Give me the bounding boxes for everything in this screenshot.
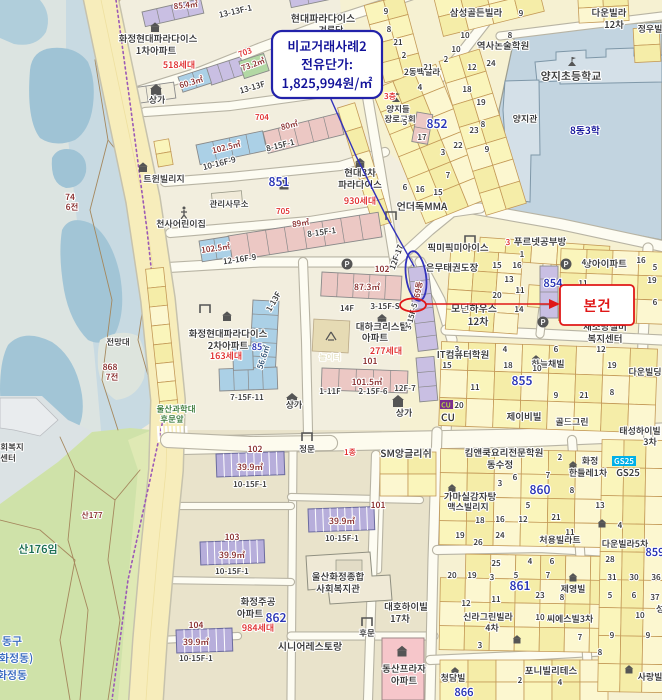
svg-text:6: 6 (632, 590, 637, 601)
svg-text:전유단가:: 전유단가: (301, 54, 353, 73)
svg-text:20: 20 (492, 290, 502, 301)
svg-text:5: 5 (653, 262, 658, 273)
svg-text:GS25: GS25 (614, 456, 634, 467)
svg-text:23: 23 (535, 590, 545, 601)
svg-text:5: 5 (514, 570, 519, 581)
svg-text:12: 12 (518, 514, 528, 525)
svg-text:7: 7 (446, 170, 451, 181)
svg-text:12: 12 (461, 598, 471, 609)
svg-text:(화정동): (화정동) (0, 650, 33, 666)
svg-text:7-15F-11: 7-15F-11 (230, 392, 264, 403)
svg-text:21: 21 (579, 390, 589, 401)
svg-text:2: 2 (558, 452, 563, 463)
svg-text:P: P (344, 259, 349, 270)
svg-text:역사논술학원: 역사논술학원 (477, 38, 529, 52)
svg-text:31: 31 (607, 572, 617, 583)
svg-text:13: 13 (595, 500, 605, 511)
svg-text:21: 21 (551, 512, 561, 523)
svg-text:2: 2 (518, 675, 523, 686)
svg-text:3: 3 (478, 640, 483, 651)
svg-text:아파트: 아파트 (362, 330, 388, 344)
svg-text:P: P (563, 259, 568, 270)
svg-text:12: 12 (596, 344, 606, 355)
svg-text:9: 9 (610, 630, 615, 641)
svg-text:8: 8 (610, 387, 615, 398)
svg-text:GS25: GS25 (616, 465, 640, 479)
svg-text:4: 4 (558, 677, 563, 688)
svg-text:8: 8 (598, 647, 603, 658)
svg-text:아파트: 아파트 (391, 673, 417, 687)
svg-text:센터: 센터 (0, 452, 16, 464)
svg-text:14F: 14F (340, 303, 354, 314)
svg-text:8: 8 (570, 485, 575, 496)
svg-text:39.9㎡: 39.9㎡ (329, 515, 355, 527)
svg-text:87.3㎡: 87.3㎡ (354, 281, 380, 293)
svg-text:정우빌: 정우빌 (638, 22, 662, 35)
svg-text:39.9㎡: 39.9㎡ (219, 549, 245, 561)
svg-text:5: 5 (403, 117, 408, 128)
svg-text:12: 12 (467, 62, 477, 73)
svg-text:13: 13 (504, 274, 514, 285)
svg-text:6전: 6전 (66, 201, 79, 213)
svg-text:30: 30 (629, 572, 639, 583)
svg-text:3층: 3층 (384, 91, 396, 102)
svg-text:15: 15 (433, 187, 443, 198)
svg-text:본건: 본건 (583, 295, 611, 316)
svg-text:IT컴퓨터학원: IT컴퓨터학원 (437, 347, 490, 361)
svg-text:39.9㎡: 39.9㎡ (183, 636, 209, 648)
svg-text:16: 16 (636, 255, 646, 266)
svg-text:전망대: 전망대 (106, 336, 130, 348)
svg-text:15: 15 (492, 260, 502, 271)
svg-text:파라다이스: 파라다이스 (338, 177, 382, 191)
svg-text:아파트: 아파트 (237, 606, 263, 620)
svg-text:3: 3 (441, 147, 446, 158)
svg-text:6: 6 (403, 182, 408, 193)
svg-text:복지센터: 복지센터 (588, 331, 623, 345)
svg-text:26: 26 (473, 537, 483, 548)
svg-text:984세대: 984세대 (242, 621, 274, 634)
svg-text:704: 704 (255, 112, 269, 123)
svg-text:4: 4 (618, 520, 623, 531)
svg-text:9: 9 (485, 144, 490, 155)
svg-text:101: 101 (371, 499, 386, 511)
svg-text:픽미픽미아이스: 픽미픽미아이스 (427, 240, 488, 254)
svg-text:상가: 상가 (396, 406, 413, 419)
svg-text:18: 18 (503, 360, 513, 371)
svg-text:24: 24 (486, 58, 496, 69)
svg-text:10-15F-1: 10-15F-1 (179, 653, 213, 664)
svg-text:11: 11 (565, 527, 575, 538)
svg-text:8: 8 (481, 119, 486, 130)
svg-text:8: 8 (560, 592, 565, 603)
svg-text:14: 14 (514, 304, 524, 315)
svg-text:관리사무소: 관리사무소 (209, 198, 248, 210)
svg-text:씨에스빌3차: 씨에스빌3차 (547, 612, 594, 625)
svg-text:4: 4 (582, 257, 587, 268)
svg-text:39.9㎡: 39.9㎡ (237, 461, 263, 473)
svg-text:2-15F-6: 2-15F-6 (359, 386, 388, 397)
svg-text:102: 102 (248, 443, 263, 455)
svg-text:18: 18 (462, 84, 472, 95)
svg-text:맥스빌리지: 맥스빌리지 (447, 500, 488, 513)
svg-text:6: 6 (653, 297, 658, 308)
svg-text:CU: CU (441, 409, 455, 424)
svg-text:3: 3 (455, 344, 460, 355)
svg-text:4: 4 (418, 82, 423, 93)
svg-text:18: 18 (475, 515, 485, 526)
svg-text:19: 19 (467, 570, 477, 581)
svg-text:4: 4 (528, 556, 533, 567)
svg-text:CU: CU (441, 401, 451, 411)
svg-text:518세대: 518세대 (163, 58, 195, 71)
svg-text:24: 24 (495, 530, 505, 541)
svg-text:19: 19 (607, 360, 617, 371)
svg-text:11: 11 (515, 285, 525, 296)
svg-text:3: 3 (498, 478, 503, 489)
svg-text:언더독MMA: 언더독MMA (397, 198, 448, 213)
svg-text:7: 7 (578, 632, 583, 643)
svg-text:장로교회: 장로교회 (384, 113, 415, 125)
svg-text:6: 6 (513, 472, 518, 483)
svg-text:산177: 산177 (81, 510, 103, 521)
svg-text:제이비빌: 제이비빌 (507, 409, 542, 423)
svg-text:9: 9 (646, 630, 651, 641)
svg-text:103: 103 (225, 531, 240, 543)
svg-text:동구: 동구 (2, 633, 22, 649)
svg-text:7전: 7전 (106, 371, 119, 383)
svg-text:15: 15 (442, 360, 452, 371)
svg-text:7: 7 (546, 570, 551, 581)
svg-text:1: 1 (520, 249, 525, 260)
svg-text:11: 11 (470, 382, 480, 393)
svg-text:5: 5 (526, 500, 531, 511)
svg-text:705: 705 (276, 206, 290, 217)
svg-text:화정동: 화정동 (0, 667, 27, 683)
svg-text:1,825,994원/㎡: 1,825,994원/㎡ (282, 73, 373, 92)
svg-text:3: 3 (490, 572, 495, 583)
svg-text:사회복지관: 사회복지관 (316, 581, 360, 595)
svg-text:12차: 12차 (468, 313, 489, 328)
svg-text:8동3학: 8동3학 (570, 122, 600, 137)
svg-text:20: 20 (454, 400, 464, 411)
svg-text:21: 21 (393, 37, 403, 48)
svg-text:9: 9 (554, 390, 559, 401)
svg-text:8: 8 (387, 24, 392, 35)
svg-text:2: 2 (402, 50, 407, 61)
svg-text:19: 19 (647, 275, 657, 286)
svg-text:1-11F: 1-11F (319, 386, 341, 397)
svg-text:9: 9 (384, 6, 389, 17)
svg-text:10: 10 (460, 30, 470, 41)
svg-text:9: 9 (519, 8, 524, 19)
svg-text:1종: 1종 (344, 447, 356, 458)
svg-text:포니빌리테스: 포니빌리테스 (525, 663, 578, 677)
svg-text:동수정: 동수정 (487, 457, 513, 471)
svg-text:산176임: 산176임 (18, 541, 57, 557)
svg-text:8: 8 (508, 30, 513, 41)
svg-text:6: 6 (554, 344, 559, 355)
svg-text:한들레1차: 한들레1차 (569, 466, 608, 479)
svg-text:성: 성 (656, 602, 662, 615)
svg-text:866: 866 (454, 684, 473, 700)
svg-text:사랑빌: 사랑빌 (638, 670, 662, 683)
svg-text:37: 37 (650, 592, 660, 603)
svg-text:10-15F-1: 10-15F-1 (215, 566, 249, 577)
svg-text:36: 36 (651, 572, 661, 583)
svg-text:양지초등학교: 양지초등학교 (541, 68, 602, 84)
svg-text:2: 2 (444, 54, 449, 65)
svg-text:다운빌딩: 다운빌딩 (628, 365, 661, 378)
svg-text:859: 859 (645, 544, 662, 560)
svg-text:19: 19 (476, 97, 486, 108)
svg-text:비교거래사례2: 비교거래사례2 (287, 36, 366, 55)
svg-text:17: 17 (417, 132, 427, 143)
svg-text:855: 855 (512, 372, 533, 389)
svg-text:7: 7 (546, 470, 551, 481)
svg-text:11: 11 (491, 594, 501, 605)
svg-text:28: 28 (605, 554, 615, 565)
svg-text:101: 101 (363, 355, 378, 367)
svg-text:은무태권도장: 은무태권도장 (426, 260, 479, 274)
svg-text:10: 10 (532, 363, 542, 374)
svg-text:3: 3 (506, 237, 511, 248)
svg-text:22: 22 (453, 140, 463, 151)
svg-text:5: 5 (608, 590, 613, 601)
svg-text:3-15F-S: 3-15F-S (370, 301, 399, 312)
svg-text:3차: 3차 (643, 435, 657, 448)
svg-text:P: P (540, 317, 545, 328)
svg-text:상아이파트: 상아이파트 (583, 256, 627, 270)
svg-text:천사어린이집: 천사어린이집 (156, 217, 206, 230)
svg-text:정문: 정문 (299, 443, 315, 455)
svg-text:SM앙글리쉬: SM앙글리쉬 (380, 445, 431, 460)
svg-text:10: 10 (451, 44, 461, 55)
svg-text:후문앞: 후문앞 (160, 413, 184, 425)
svg-text:930세대: 930세대 (344, 194, 376, 207)
svg-text:10-15F-1: 10-15F-1 (233, 479, 267, 490)
svg-text:16: 16 (495, 514, 505, 525)
svg-text:청담빌: 청담빌 (441, 671, 466, 684)
svg-text:상가: 상가 (149, 93, 166, 106)
svg-text:시니어레스토랑: 시니어레스토랑 (278, 638, 342, 653)
svg-text:4: 4 (503, 344, 508, 355)
svg-text:10: 10 (535, 612, 545, 623)
svg-text:19: 19 (455, 530, 465, 541)
svg-text:21: 21 (423, 62, 433, 73)
svg-text:푸르넷공부방: 푸르넷공부방 (514, 234, 567, 248)
svg-text:4차: 4차 (485, 621, 499, 634)
svg-text:20: 20 (447, 570, 457, 581)
svg-text:16: 16 (415, 184, 425, 195)
svg-text:85.4㎡: 85.4㎡ (173, 0, 198, 12)
svg-text:12F-7: 12F-7 (394, 383, 416, 394)
svg-text:852: 852 (427, 115, 448, 132)
svg-text:상가: 상가 (286, 398, 303, 411)
svg-text:삼성골든빌라: 삼성골든빌라 (450, 5, 503, 19)
svg-text:2동백빌라: 2동백빌라 (404, 66, 440, 78)
svg-text:트윈빌리지: 트윈빌리지 (143, 172, 184, 185)
svg-text:골드그린: 골드그린 (555, 415, 588, 428)
svg-text:10: 10 (635, 610, 645, 621)
svg-text:860: 860 (530, 481, 551, 498)
svg-text:후문: 후문 (359, 627, 375, 639)
svg-text:12차: 12차 (604, 17, 624, 31)
svg-text:양지관: 양지관 (513, 112, 538, 125)
svg-text:다운빌라5차: 다운빌라5차 (602, 537, 649, 550)
svg-text:6: 6 (550, 556, 555, 567)
svg-text:163세대: 163세대 (210, 349, 242, 362)
svg-text:16: 16 (512, 260, 522, 271)
svg-text:851: 851 (269, 173, 290, 190)
svg-text:104: 104 (189, 619, 204, 631)
svg-text:놀이터: 놀이터 (319, 352, 341, 363)
svg-text:23: 23 (469, 125, 479, 136)
svg-text:1차아파트: 1차아파트 (136, 43, 177, 57)
svg-text:17차: 17차 (390, 611, 410, 625)
svg-text:25: 25 (491, 558, 501, 569)
svg-text:10-15F-1: 10-15F-1 (325, 533, 359, 544)
